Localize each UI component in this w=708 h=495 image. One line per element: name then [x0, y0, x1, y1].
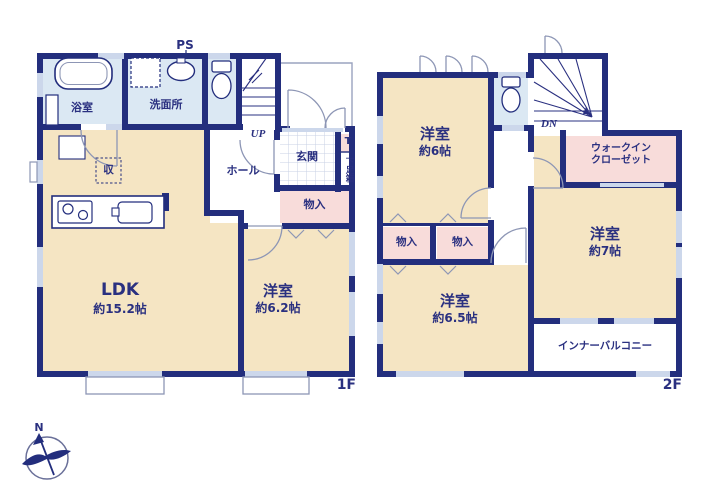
bath-counter	[46, 95, 58, 125]
room-hall	[210, 130, 280, 223]
compass	[22, 433, 71, 479]
porch-outline	[280, 63, 352, 128]
floor-plan-canvas: PS 浴室 洗面所 UP 玄関 T 下足箱 ホール 収 物入 LDK 約15.2…	[0, 0, 708, 495]
room-wic	[566, 136, 676, 182]
entry-door-child	[325, 108, 345, 128]
ldk-side-door-notch	[30, 162, 37, 182]
washing-machine	[131, 58, 160, 87]
room-bedroom-6-2	[244, 229, 349, 371]
casement-window	[446, 56, 462, 72]
wash-basin	[168, 62, 195, 81]
casement-window	[472, 56, 488, 72]
toilet-2f-bowl	[502, 88, 520, 112]
kitchen-sink	[118, 202, 152, 223]
toilet-1f-bowl	[212, 74, 231, 99]
toilet-1f-tank	[212, 61, 231, 72]
refrigerator-space	[59, 136, 85, 159]
room-balcony	[534, 324, 676, 371]
room-storage-2f-right	[437, 227, 488, 259]
door-bedroom-6-5	[491, 228, 526, 263]
compass-wing	[22, 450, 71, 465]
bay-windows	[86, 377, 309, 394]
floor2-wall-openings	[488, 152, 534, 220]
entry-door-main	[288, 90, 326, 128]
room-bedroom-6	[383, 78, 488, 223]
room-entrance-tile	[280, 132, 335, 186]
floor2-fixtures	[502, 77, 520, 112]
kitchen-tap	[112, 208, 119, 216]
stairs-top-window	[545, 36, 562, 53]
room-bedroom-6-5	[383, 265, 528, 371]
toilet-2f-tank	[502, 77, 520, 87]
floor-plan-drawing	[0, 0, 708, 495]
stairs-2f-treads	[534, 59, 602, 121]
room-storage-1f	[280, 191, 349, 223]
room-storage-2f-left	[383, 227, 430, 259]
wash-basin-tap	[177, 58, 185, 63]
casement-window	[420, 56, 436, 72]
shoe-box-divider	[341, 151, 355, 152]
